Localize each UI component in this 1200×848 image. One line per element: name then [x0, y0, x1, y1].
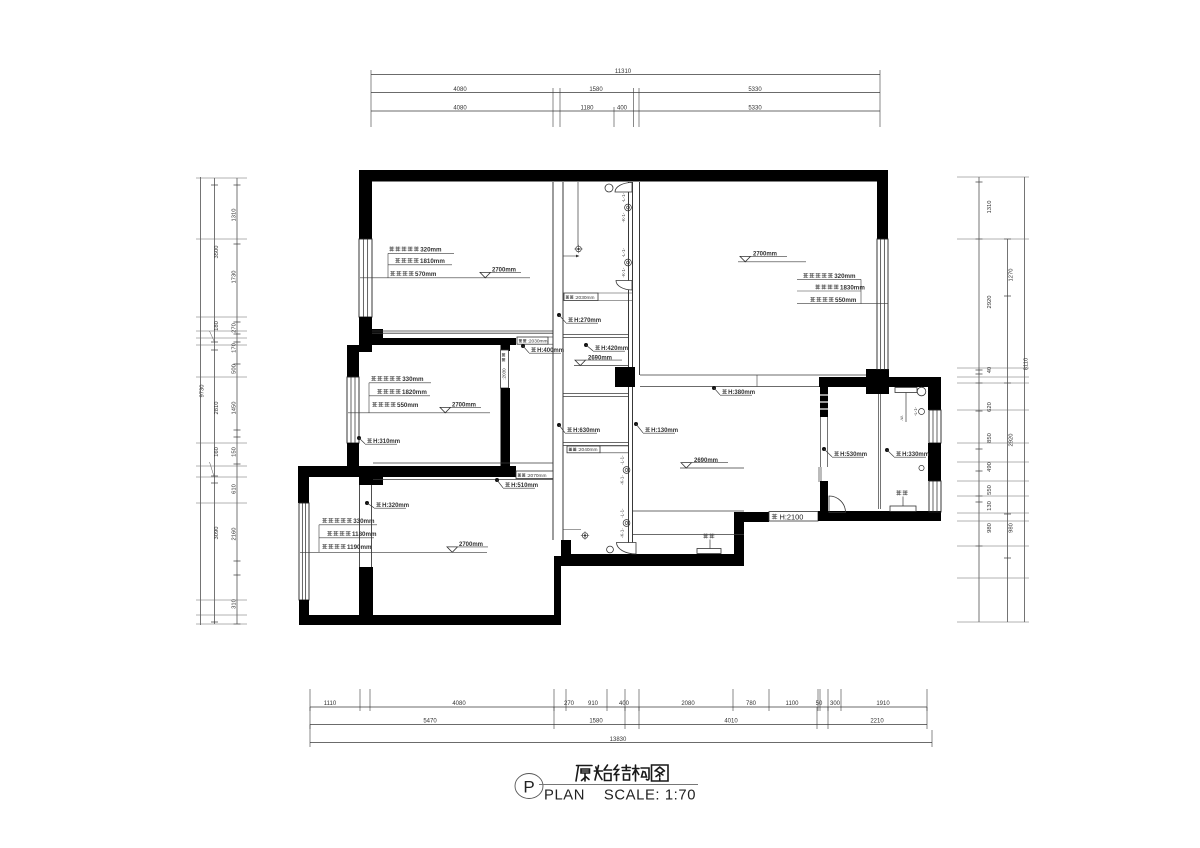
svg-text::2030: :2030	[501, 368, 506, 380]
svg-text:500: 500	[232, 364, 238, 374]
svg-text:1310: 1310	[232, 209, 238, 222]
svg-text:1180: 1180	[581, 106, 595, 112]
svg-text:1810mm: 1810mm	[420, 258, 445, 265]
svg-text:11310: 11310	[615, 69, 632, 75]
svg-text:550mm: 550mm	[835, 297, 857, 304]
svg-text:160: 160	[214, 447, 220, 457]
svg-text:550: 550	[987, 485, 993, 495]
svg-text:2700mm: 2700mm	[492, 268, 516, 274]
svg-text:-L-1-: -L-1-	[621, 247, 626, 257]
svg-text:4010: 4010	[724, 719, 738, 725]
svg-text:2080: 2080	[681, 701, 695, 707]
svg-text:5470: 5470	[423, 719, 437, 725]
svg-text:-L-1-: -L-1-	[913, 406, 918, 415]
svg-text:400: 400	[617, 106, 628, 112]
svg-text:1110: 1110	[324, 701, 337, 707]
svg-text:490: 490	[987, 462, 993, 472]
svg-text:3500: 3500	[214, 246, 220, 259]
svg-text:1310: 1310	[987, 201, 993, 214]
svg-text:1910: 1910	[876, 701, 890, 707]
svg-text:780: 780	[746, 701, 757, 707]
svg-text:300: 300	[830, 701, 841, 707]
svg-text:320mm: 320mm	[834, 273, 856, 280]
svg-text::2030mm: :2030mm	[575, 295, 595, 301]
svg-text:-L-1-: -L-1-	[619, 455, 624, 465]
svg-text:40: 40	[987, 367, 993, 373]
svg-text:180: 180	[214, 321, 220, 331]
svg-text:270: 270	[564, 701, 575, 707]
svg-text:620: 620	[987, 402, 993, 412]
svg-text:50: 50	[816, 701, 823, 707]
svg-text:1450: 1450	[232, 402, 238, 415]
svg-text:1100: 1100	[786, 701, 800, 707]
svg-text:330mm: 330mm	[353, 518, 375, 525]
svg-text:4080: 4080	[452, 701, 466, 707]
svg-text:910: 910	[588, 701, 599, 707]
svg-text:330mm: 330mm	[402, 376, 424, 383]
svg-text:2700mm: 2700mm	[452, 403, 476, 409]
svg-text:1270: 1270	[1009, 269, 1015, 282]
svg-text:9730: 9730	[200, 385, 206, 398]
svg-text:-K-1-: -K-1-	[619, 475, 624, 485]
svg-text:2700mm: 2700mm	[753, 252, 777, 258]
svg-text:980: 980	[1009, 523, 1015, 533]
svg-text:1830mm: 1830mm	[840, 285, 865, 292]
svg-text:570mm: 570mm	[415, 271, 437, 278]
svg-text:850: 850	[987, 433, 993, 443]
svg-text:-W-: -W-	[900, 414, 904, 421]
svg-text:-L-1-: -L-1-	[621, 192, 626, 202]
svg-text:1580: 1580	[589, 719, 603, 725]
svg-text:H:2100: H:2100	[780, 512, 804, 521]
svg-text::2070mm: :2070mm	[527, 473, 547, 479]
svg-text:2810: 2810	[214, 402, 220, 415]
svg-text:4080: 4080	[453, 106, 467, 112]
svg-text:3090: 3090	[214, 527, 220, 540]
svg-text:270: 270	[232, 323, 238, 333]
svg-text::2040mm: :2040mm	[578, 447, 598, 453]
svg-text:320mm: 320mm	[420, 247, 442, 254]
svg-text:170: 170	[232, 343, 238, 353]
svg-text:2210: 2210	[870, 719, 884, 725]
svg-text:980: 980	[987, 523, 993, 533]
svg-text:-K-1-: -K-1-	[621, 267, 626, 277]
svg-text:13830: 13830	[610, 737, 627, 743]
svg-text:8110: 8110	[1024, 358, 1030, 370]
svg-text:PLAN SCALE: 1:70: PLAN SCALE: 1:70	[544, 788, 696, 804]
svg-text:5330: 5330	[748, 106, 762, 112]
svg-text:2160: 2160	[232, 528, 238, 541]
svg-text:1190mm: 1190mm	[347, 544, 372, 551]
svg-text:150: 150	[232, 447, 238, 457]
svg-text:400: 400	[619, 701, 630, 707]
svg-text:4080: 4080	[453, 87, 467, 93]
svg-text:-K-1-: -K-1-	[621, 212, 626, 222]
svg-text:1820mm: 1820mm	[402, 389, 427, 396]
svg-text:1580: 1580	[589, 87, 603, 93]
svg-text:550mm: 550mm	[397, 402, 419, 409]
svg-text:2920: 2920	[987, 296, 993, 309]
svg-text::2030mm: :2030mm	[528, 339, 548, 345]
svg-text:-L-1-: -L-1-	[619, 508, 624, 518]
svg-text:-K-1-: -K-1-	[619, 528, 624, 538]
svg-text:1730: 1730	[232, 271, 238, 284]
svg-text:130: 130	[987, 501, 993, 511]
svg-text:2920: 2920	[1009, 434, 1015, 447]
svg-text:310: 310	[232, 599, 238, 609]
svg-text:5330: 5330	[748, 87, 762, 93]
svg-text:610: 610	[232, 484, 238, 494]
svg-text:1180mm: 1180mm	[352, 531, 377, 538]
svg-text:P: P	[523, 778, 534, 797]
